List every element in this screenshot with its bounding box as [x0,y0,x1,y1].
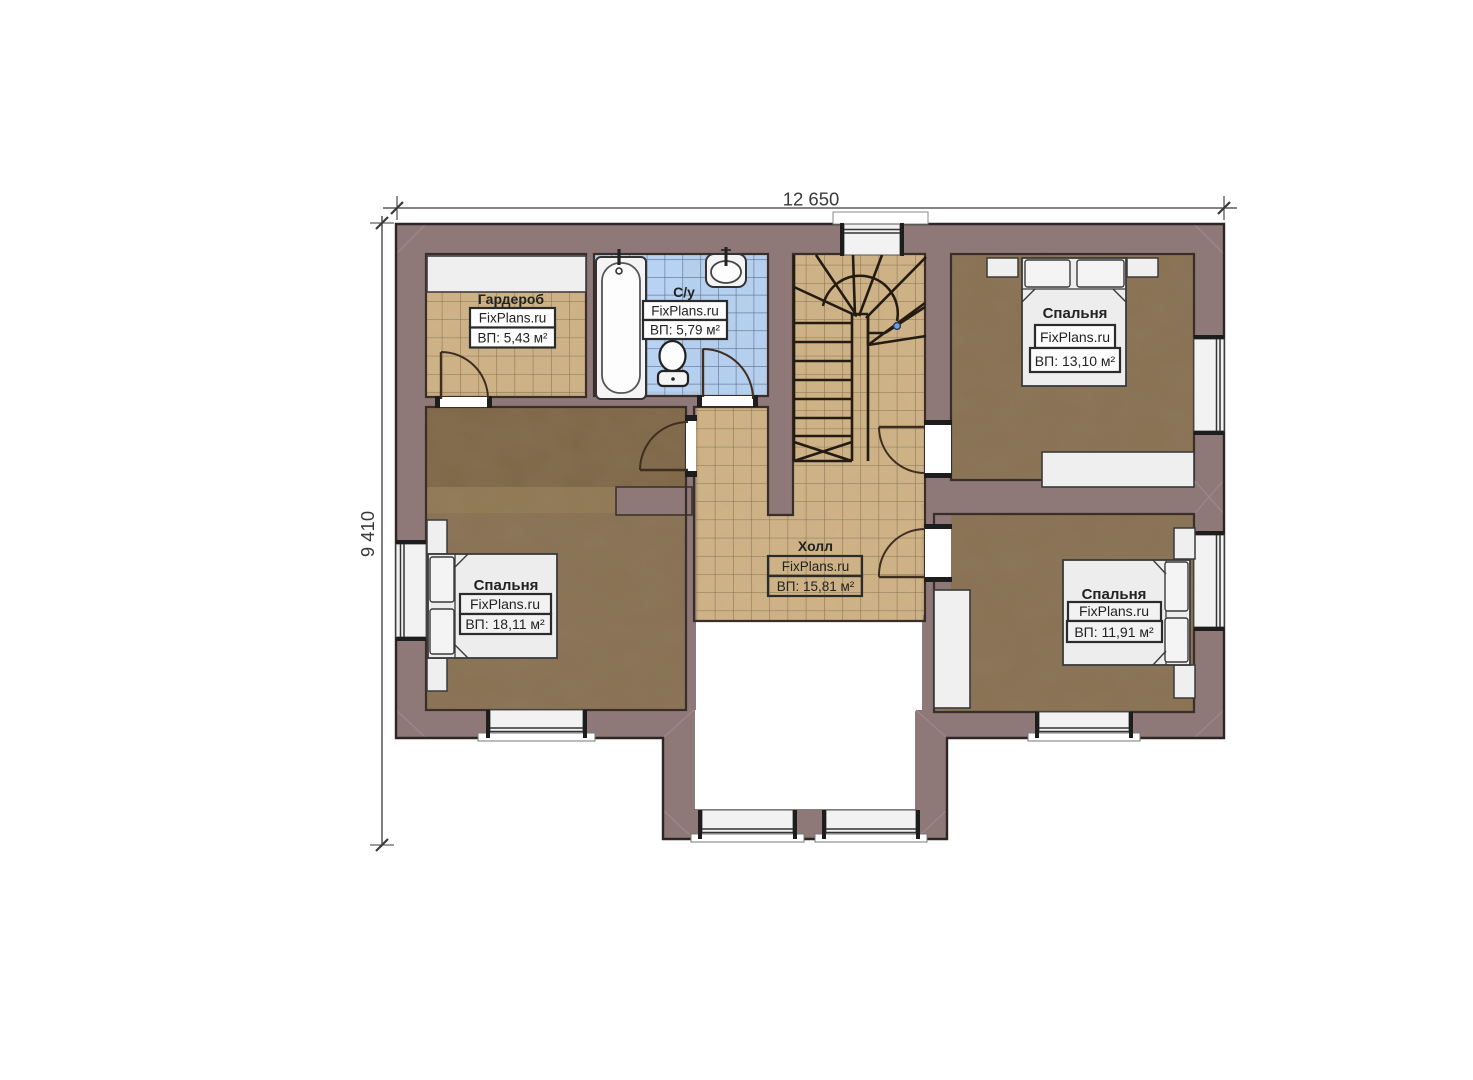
svg-text:9 410: 9 410 [357,511,378,557]
svg-text:ВП: 11,91 м²: ВП: 11,91 м² [1074,624,1154,640]
svg-text:Спальня: Спальня [1082,586,1147,603]
svg-text:ВП: 5,79 м²: ВП: 5,79 м² [650,323,721,338]
svg-text:Спальня: Спальня [1043,305,1108,322]
svg-text:ВП: 5,43 м²: ВП: 5,43 м² [477,331,548,346]
svg-text:ВП: 18,11 м²: ВП: 18,11 м² [465,616,545,632]
svg-text:FixPlans.ru: FixPlans.ru [651,304,719,319]
svg-text:ВП: 13,10 м²: ВП: 13,10 м² [1035,353,1116,369]
svg-text:Гардероб: Гардероб [478,291,545,307]
svg-text:FixPlans.ru: FixPlans.ru [1040,329,1110,345]
svg-text:ВП: 15,81 м²: ВП: 15,81 м² [777,579,855,594]
svg-text:12 650: 12 650 [783,189,840,210]
svg-text:Спальня: Спальня [474,577,539,594]
svg-text:С/у: С/у [673,284,695,300]
svg-text:FixPlans.ru: FixPlans.ru [1079,603,1149,619]
svg-text:FixPlans.ru: FixPlans.ru [470,596,540,612]
svg-text:FixPlans.ru: FixPlans.ru [782,559,850,574]
svg-text:Холл: Холл [798,538,833,554]
svg-text:FixPlans.ru: FixPlans.ru [479,311,547,326]
